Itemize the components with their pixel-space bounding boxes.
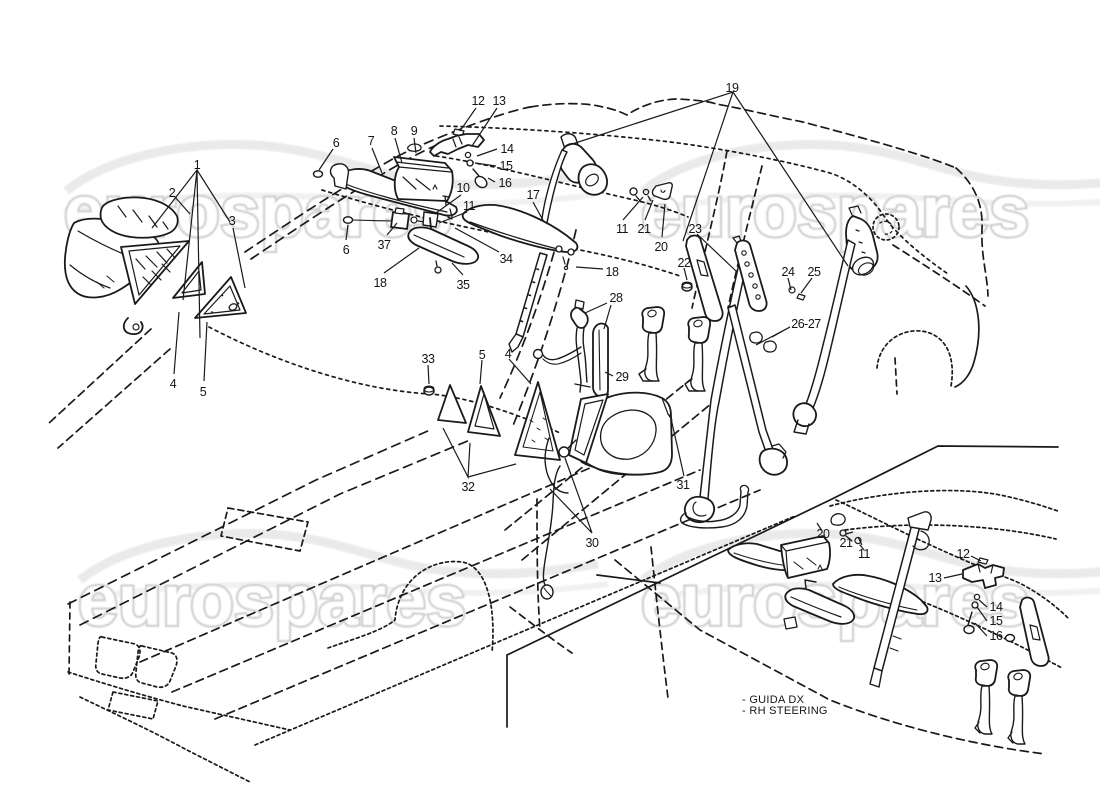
svg-text:14: 14 xyxy=(501,142,514,156)
svg-text:11: 11 xyxy=(463,199,476,213)
svg-text:1: 1 xyxy=(194,158,201,172)
svg-text:26-27: 26-27 xyxy=(791,317,821,331)
svg-text:29: 29 xyxy=(616,370,629,384)
svg-text:21: 21 xyxy=(840,536,853,550)
svg-text:16: 16 xyxy=(990,629,1003,643)
svg-text:7: 7 xyxy=(368,134,375,148)
svg-text:34: 34 xyxy=(500,252,513,266)
svg-text:15: 15 xyxy=(990,614,1003,628)
svg-text:25: 25 xyxy=(808,265,821,279)
svg-text:2: 2 xyxy=(169,186,176,200)
svg-text:9: 9 xyxy=(411,124,418,138)
svg-text:3: 3 xyxy=(229,214,236,228)
svg-text:- RH STEERING: - RH STEERING xyxy=(742,705,828,717)
svg-text:35: 35 xyxy=(457,278,470,292)
svg-text:31: 31 xyxy=(677,478,690,492)
svg-text:6: 6 xyxy=(333,136,340,150)
svg-text:12: 12 xyxy=(957,547,970,561)
svg-text:37: 37 xyxy=(378,238,391,252)
svg-text:28: 28 xyxy=(610,291,623,305)
svg-text:23: 23 xyxy=(689,222,702,236)
svg-text:13: 13 xyxy=(929,571,942,585)
svg-text:32: 32 xyxy=(462,480,475,494)
svg-text:14: 14 xyxy=(990,600,1003,614)
svg-text:11: 11 xyxy=(616,222,629,236)
svg-text:17: 17 xyxy=(527,188,540,202)
svg-text:24: 24 xyxy=(782,265,795,279)
svg-text:5: 5 xyxy=(479,348,486,362)
svg-text:4: 4 xyxy=(505,347,512,361)
svg-text:19: 19 xyxy=(726,81,739,95)
svg-text:20: 20 xyxy=(817,527,830,541)
svg-text:8: 8 xyxy=(391,124,398,138)
svg-text:11: 11 xyxy=(858,547,871,561)
svg-text:13: 13 xyxy=(493,94,506,108)
svg-text:33: 33 xyxy=(422,352,435,366)
svg-text:30: 30 xyxy=(586,536,599,550)
svg-text:6: 6 xyxy=(343,243,350,257)
svg-text:20: 20 xyxy=(655,240,668,254)
svg-text:18: 18 xyxy=(374,276,387,290)
svg-text:16: 16 xyxy=(499,176,512,190)
svg-text:10: 10 xyxy=(457,181,470,195)
svg-text:5: 5 xyxy=(200,385,207,399)
svg-text:12: 12 xyxy=(472,94,485,108)
svg-text:21: 21 xyxy=(638,222,651,236)
svg-text:22: 22 xyxy=(678,256,691,270)
svg-text:18: 18 xyxy=(606,265,619,279)
svg-text:4: 4 xyxy=(170,377,177,391)
svg-text:15: 15 xyxy=(500,159,513,173)
